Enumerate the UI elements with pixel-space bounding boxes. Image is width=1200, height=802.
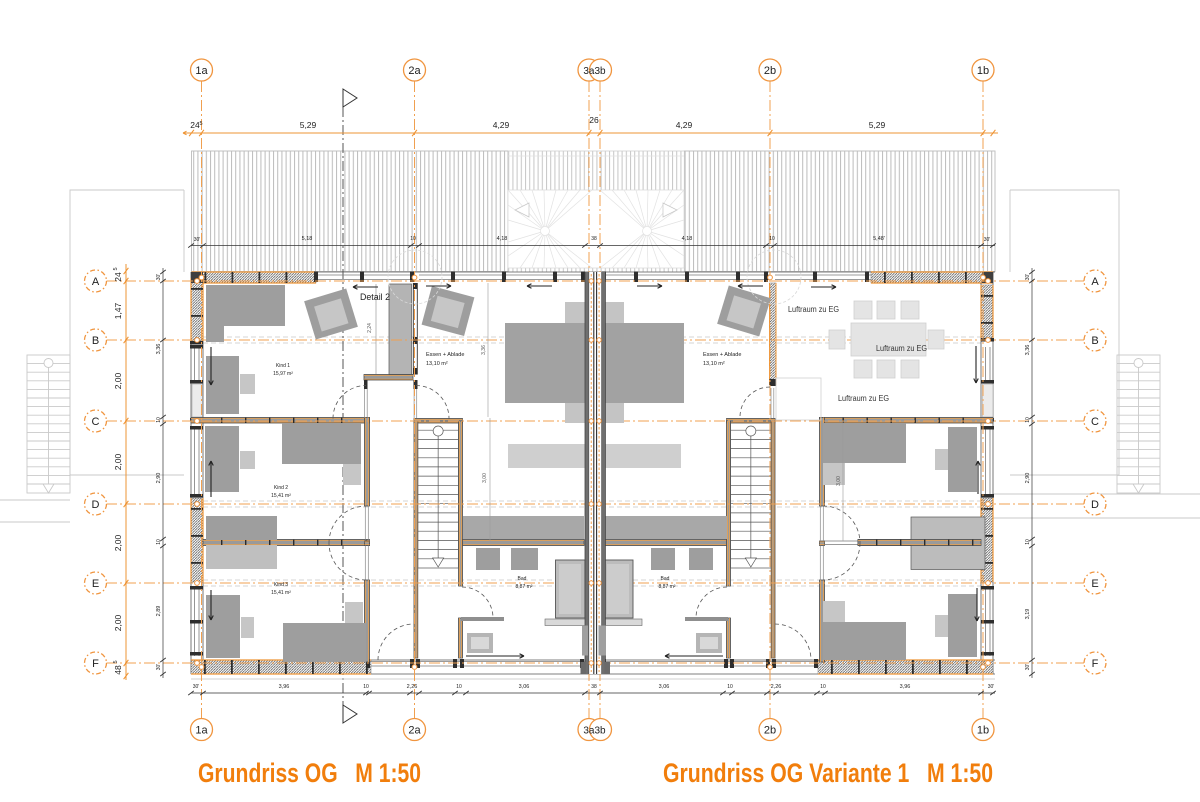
svg-text:2,90: 2,90 (156, 473, 162, 484)
svg-text:2b: 2b (764, 65, 776, 77)
svg-text:15,97 m²: 15,97 m² (273, 371, 293, 377)
svg-text:3,96: 3,96 (900, 684, 911, 690)
svg-text:2,00: 2,00 (113, 534, 123, 551)
svg-text:30': 30' (988, 684, 995, 690)
svg-text:30': 30' (156, 664, 162, 671)
svg-text:B: B (92, 335, 99, 347)
svg-text:5: 5 (199, 121, 202, 127)
svg-text:5,48': 5,48' (873, 236, 885, 242)
svg-text:2,26: 2,26 (407, 684, 418, 690)
svg-text:10: 10 (363, 684, 369, 690)
svg-text:F: F (1092, 658, 1099, 670)
svg-text:3,06: 3,06 (519, 684, 530, 690)
svg-text:5: 5 (113, 660, 119, 663)
svg-text:30': 30' (156, 274, 162, 281)
svg-text:10: 10 (727, 684, 733, 690)
svg-text:1a: 1a (195, 65, 208, 77)
svg-text:Kind 1: Kind 1 (276, 363, 290, 369)
svg-text:30': 30' (1025, 664, 1031, 671)
svg-text:13,10 m²: 13,10 m² (426, 361, 448, 367)
svg-text:30': 30' (1025, 274, 1031, 281)
svg-text:5,18: 5,18 (302, 236, 313, 242)
svg-text:10: 10 (156, 417, 162, 423)
svg-text:1b: 1b (977, 65, 989, 77)
svg-text:4,18: 4,18 (497, 236, 508, 242)
svg-text:8,87 m²: 8,87 m² (659, 584, 676, 590)
svg-text:2,26: 2,26 (771, 684, 782, 690)
svg-text:Kind 2: Kind 2 (274, 485, 288, 491)
svg-text:3a3b: 3a3b (583, 66, 606, 77)
svg-text:2,90: 2,90 (1025, 473, 1031, 484)
svg-text:1a: 1a (195, 725, 208, 737)
svg-text:3,00: 3,00 (482, 473, 488, 483)
svg-text:2b: 2b (764, 725, 776, 737)
svg-text:Kind 3: Kind 3 (274, 582, 288, 588)
svg-text:3,36: 3,36 (481, 345, 487, 355)
svg-text:24: 24 (113, 272, 123, 282)
svg-text:2,00: 2,00 (113, 614, 123, 631)
svg-text:13,10 m²: 13,10 m² (703, 361, 725, 367)
svg-text:2a: 2a (408, 725, 421, 737)
svg-text:E: E (92, 578, 99, 590)
svg-text:3,96: 3,96 (279, 684, 290, 690)
svg-text:2,89: 2,89 (156, 606, 162, 617)
svg-text:4,29: 4,29 (493, 120, 510, 130)
svg-text:2a: 2a (408, 65, 421, 77)
svg-text:3,36: 3,36 (156, 344, 162, 355)
svg-text:48: 48 (113, 665, 123, 675)
svg-text:30': 30' (193, 684, 200, 690)
svg-text:D: D (1091, 499, 1099, 511)
svg-text:8,87 m²: 8,87 m² (516, 584, 533, 590)
svg-text:C: C (92, 416, 100, 428)
svg-text:Luftraum zu EG: Luftraum zu EG (788, 305, 839, 314)
svg-text:10: 10 (1025, 539, 1031, 545)
svg-text:F: F (92, 658, 99, 670)
svg-text:1b: 1b (977, 725, 989, 737)
svg-text:B: B (1091, 335, 1098, 347)
svg-text:2,24: 2,24 (367, 323, 373, 333)
svg-text:3,36: 3,36 (1025, 345, 1031, 356)
svg-text:10: 10 (1025, 417, 1031, 423)
svg-text:D: D (92, 499, 100, 511)
svg-text:Bad: Bad (518, 576, 527, 582)
svg-text:5: 5 (113, 267, 119, 270)
svg-text:10: 10 (820, 684, 826, 690)
svg-text:10: 10 (410, 236, 416, 242)
svg-text:2,00: 2,00 (113, 372, 123, 389)
svg-text:Luftraum zu EG: Luftraum zu EG (838, 394, 889, 403)
svg-text:3,19: 3,19 (1025, 609, 1031, 620)
svg-text:10: 10 (156, 539, 162, 545)
svg-text:Luftraum zu EG: Luftraum zu EG (876, 344, 927, 353)
svg-text:Detail 2: Detail 2 (360, 292, 390, 302)
svg-text:15,41 m²: 15,41 m² (271, 493, 291, 499)
svg-text:A: A (92, 276, 100, 288)
svg-text:3a3b: 3a3b (583, 726, 606, 737)
svg-text:A: A (1091, 276, 1099, 288)
svg-text:10: 10 (456, 684, 462, 690)
svg-text:5,29: 5,29 (300, 120, 317, 130)
svg-text:Grundriss OG M 1:50: Grundriss OG M 1:50 (198, 758, 421, 788)
svg-text:Essen + Ablade: Essen + Ablade (426, 352, 464, 358)
svg-text:38: 38 (591, 236, 597, 242)
svg-text:2,00: 2,00 (113, 453, 123, 470)
svg-text:30': 30' (194, 237, 201, 243)
svg-text:10: 10 (769, 236, 775, 242)
svg-text:5,29: 5,29 (869, 120, 886, 130)
svg-text:30': 30' (984, 237, 991, 243)
svg-text:15,41 m²: 15,41 m² (271, 590, 291, 596)
svg-text:Grundriss OG Variante 1 M 1:: Grundriss OG Variante 1 M 1:50 (663, 758, 993, 788)
svg-text:4,18: 4,18 (682, 236, 693, 242)
svg-text:3,00: 3,00 (836, 476, 842, 486)
svg-text:Bad: Bad (661, 576, 670, 582)
svg-text:C: C (1091, 416, 1099, 428)
svg-text:E: E (1091, 578, 1098, 590)
svg-text:1,47: 1,47 (113, 302, 123, 319)
svg-text:3,06: 3,06 (659, 684, 670, 690)
svg-text:38: 38 (591, 684, 597, 690)
svg-text:Essen + Ablade: Essen + Ablade (703, 352, 741, 358)
svg-text:26: 26 (589, 115, 599, 125)
svg-text:4,29: 4,29 (676, 120, 693, 130)
